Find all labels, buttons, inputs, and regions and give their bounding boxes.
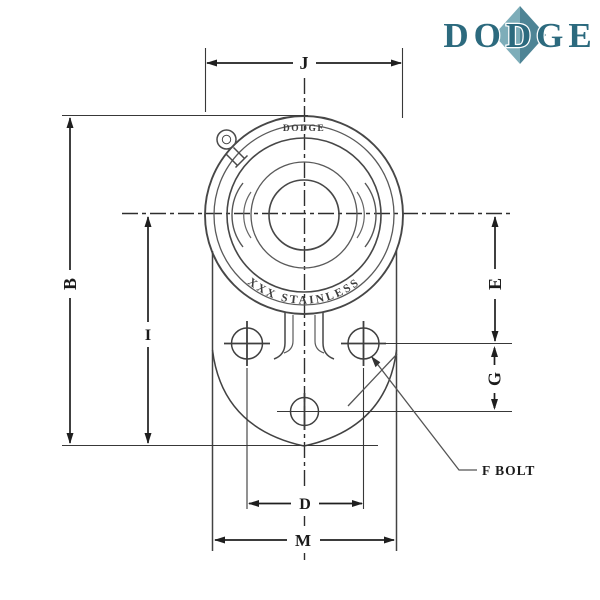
dim-label-d: D <box>299 496 311 513</box>
dim-label-j: J <box>300 53 309 73</box>
dimension-drawing: J B I E G D M F BOLT DODGE XXX STAINLESS… <box>0 0 600 600</box>
dim-label-i: I <box>145 327 151 344</box>
dim-label-g: G <box>485 372 505 386</box>
bracket-curve-right <box>304 350 397 446</box>
dim-label-m: M <box>295 531 311 550</box>
collar-arc-left <box>232 183 243 247</box>
dim-label-e: E <box>485 278 505 290</box>
bolt-callout-text: F BOLT <box>482 463 535 478</box>
dodge-logo: DODGE <box>443 6 596 64</box>
dim-label-b: B <box>60 278 80 290</box>
bracket-curve-left <box>213 350 305 446</box>
cast-brand-text: DODGE <box>283 124 325 134</box>
collar-arc-right <box>365 183 376 247</box>
drawing-page: J B I E G D M F BOLT DODGE XXX STAINLESS… <box>0 0 600 600</box>
logo-wordmark: DODGE <box>443 16 596 55</box>
centerlines <box>122 78 512 560</box>
